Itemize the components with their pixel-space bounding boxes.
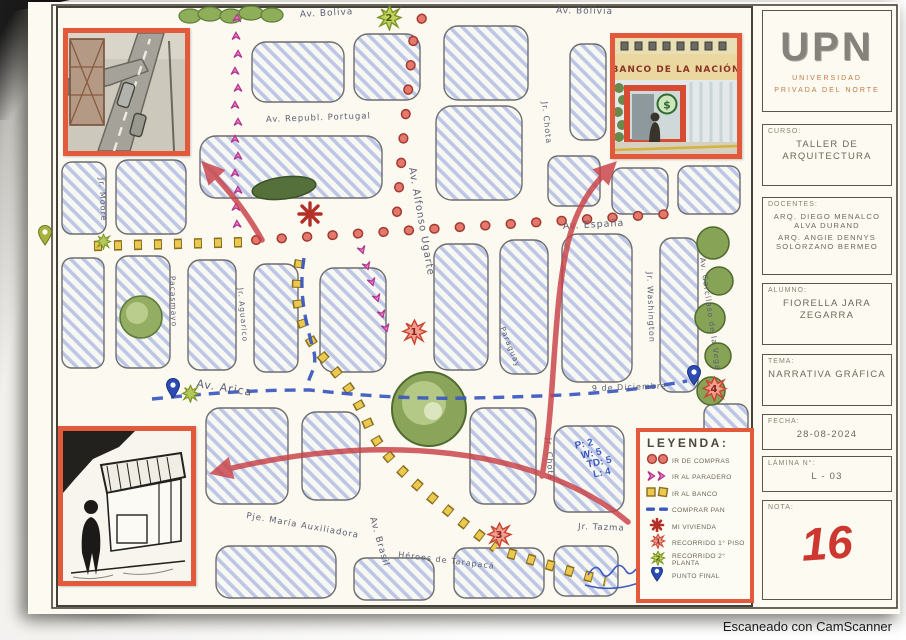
nota-value: 16 [766, 511, 888, 577]
legend-item-banco: IR AL BANCO [645, 486, 746, 503]
lamina-box: LÁMINA N°: L - 03 [762, 456, 892, 492]
city-block [436, 106, 522, 200]
lamina-label: LÁMINA N°: [768, 460, 886, 469]
street-label: Av. Bolivia [556, 6, 613, 17]
legend-label: RECORRIDO 2° PLANTA [672, 553, 746, 567]
city-block [678, 166, 740, 214]
city-block [188, 260, 236, 370]
city-block [354, 558, 434, 600]
curso-label: CURSO: [768, 128, 886, 137]
legend-label: IR DE COMPRAS [672, 458, 730, 465]
docentes-box: DOCENTES: ARQ. DIEGO MENALCO ALVA DURAND… [762, 197, 892, 275]
city-block [500, 240, 548, 374]
alumno-box: ALUMNO: FIORELLA JARA ZEGARRA [762, 283, 892, 345]
lamina-value: L - 03 [768, 471, 886, 483]
tema-label: TEMA: [768, 358, 886, 367]
bank-sign-text: BANCO DE LA NACIÓN [615, 63, 737, 75]
city-block [254, 264, 298, 372]
legend-item-compras: IR DE COMPRAS [645, 453, 746, 470]
city-block [434, 244, 488, 370]
alumno-value: FIORELLA JARA ZEGARRA [768, 298, 886, 322]
scanned-photo: Av. Boliva Av. Bolivia Av. Republ. Portu… [0, 0, 906, 640]
curso-box: CURSO: TALLER DE ARQUITECTURA [762, 124, 892, 186]
tema-box: TEMA: NARRATIVA GRÁFICA [762, 354, 892, 406]
street-sketch-inset [63, 28, 190, 156]
red-dots-icon [645, 452, 672, 470]
legend-label: IR AL PARADERO [672, 474, 732, 481]
city-block [206, 408, 288, 504]
city-block [62, 258, 104, 368]
docentes-label: DOCENTES: [768, 201, 886, 210]
home-asterisk [299, 203, 321, 225]
university-name-line2: PRIVADA DEL NORTE [768, 87, 886, 96]
street-sketch [68, 33, 185, 151]
legend-item-final: PUNTO FINAL [645, 569, 746, 586]
tema-value: NARRATIVA GRÁFICA [768, 369, 886, 381]
legend-label: MI VIVIENDA [672, 524, 716, 531]
legend-label: PUNTO FINAL [672, 573, 720, 580]
city-block [612, 168, 668, 214]
house-sketch-inset [58, 426, 196, 586]
legend-item-paradero: IR AL PARADERO [645, 470, 746, 487]
street-label: Pacasmayo [168, 276, 179, 328]
legend-badge: 2 [656, 554, 661, 562]
city-block [562, 234, 632, 382]
city-block [116, 160, 186, 234]
marker-number: 4 [711, 384, 718, 395]
money-badge-text: $ [663, 99, 671, 112]
street-label: Jr. Tazma [577, 522, 625, 534]
city-block [216, 546, 336, 598]
city-block [444, 26, 528, 100]
house-sketch [63, 431, 191, 581]
pin-paradero [39, 226, 52, 246]
camscanner-watermark: Escaneado con CamScanner [723, 619, 892, 634]
docente-2: ARQ. ANGIE DENNYS SOLÓRZANO BERMEO [768, 233, 886, 252]
big-tree [392, 372, 466, 446]
marker-number: 1 [411, 327, 418, 338]
blue-pin-icon [645, 567, 672, 587]
legend-item-pan: COMPRAR PAN [645, 503, 746, 520]
legend-badge: 1 [656, 538, 661, 546]
marker-number: 3 [496, 530, 503, 541]
alumno-label: ALUMNO: [768, 287, 886, 296]
legend-box: LEYENDA: IR DE COMPRAS IR AL PARADERO IR… [636, 428, 754, 603]
legend-label: RECORRIDO 1° PISO [672, 540, 745, 547]
city-block [548, 156, 600, 206]
fecha-label: FECHA: [768, 418, 886, 427]
upn-logo-box: UPN UNIVERSIDAD PRIVADA DEL NORTE [762, 10, 892, 112]
tree [120, 296, 162, 338]
bank-sketch-inset: BANCO DE LA NACIÓN $ [610, 33, 742, 159]
legend-title: LEYENDA: [647, 436, 746, 450]
docente-1: ARQ. DIEGO MENALCO ALVA DURAND [768, 212, 886, 231]
fecha-box: FECHA: 28-08-2024 [762, 414, 892, 450]
upn-logo: UPN [768, 22, 886, 72]
legend-label: COMPRAR PAN [672, 507, 725, 514]
city-block [570, 44, 606, 140]
city-block [252, 42, 344, 102]
legend-label: IR AL BANCO [672, 491, 718, 498]
city-block [320, 268, 386, 372]
yellow-squares-icon [645, 485, 672, 503]
bank-sketch: BANCO DE LA NACIÓN $ [615, 38, 737, 154]
marker-number: 2 [386, 13, 393, 24]
curso-value: TALLER DE ARQUITECTURA [768, 139, 886, 163]
pink-chevrons-icon [645, 469, 672, 487]
fecha-value: 28-08-2024 [768, 429, 886, 441]
nota-box: NOTA: 16 [762, 500, 892, 600]
university-name-line1: UNIVERSIDAD [768, 75, 886, 84]
